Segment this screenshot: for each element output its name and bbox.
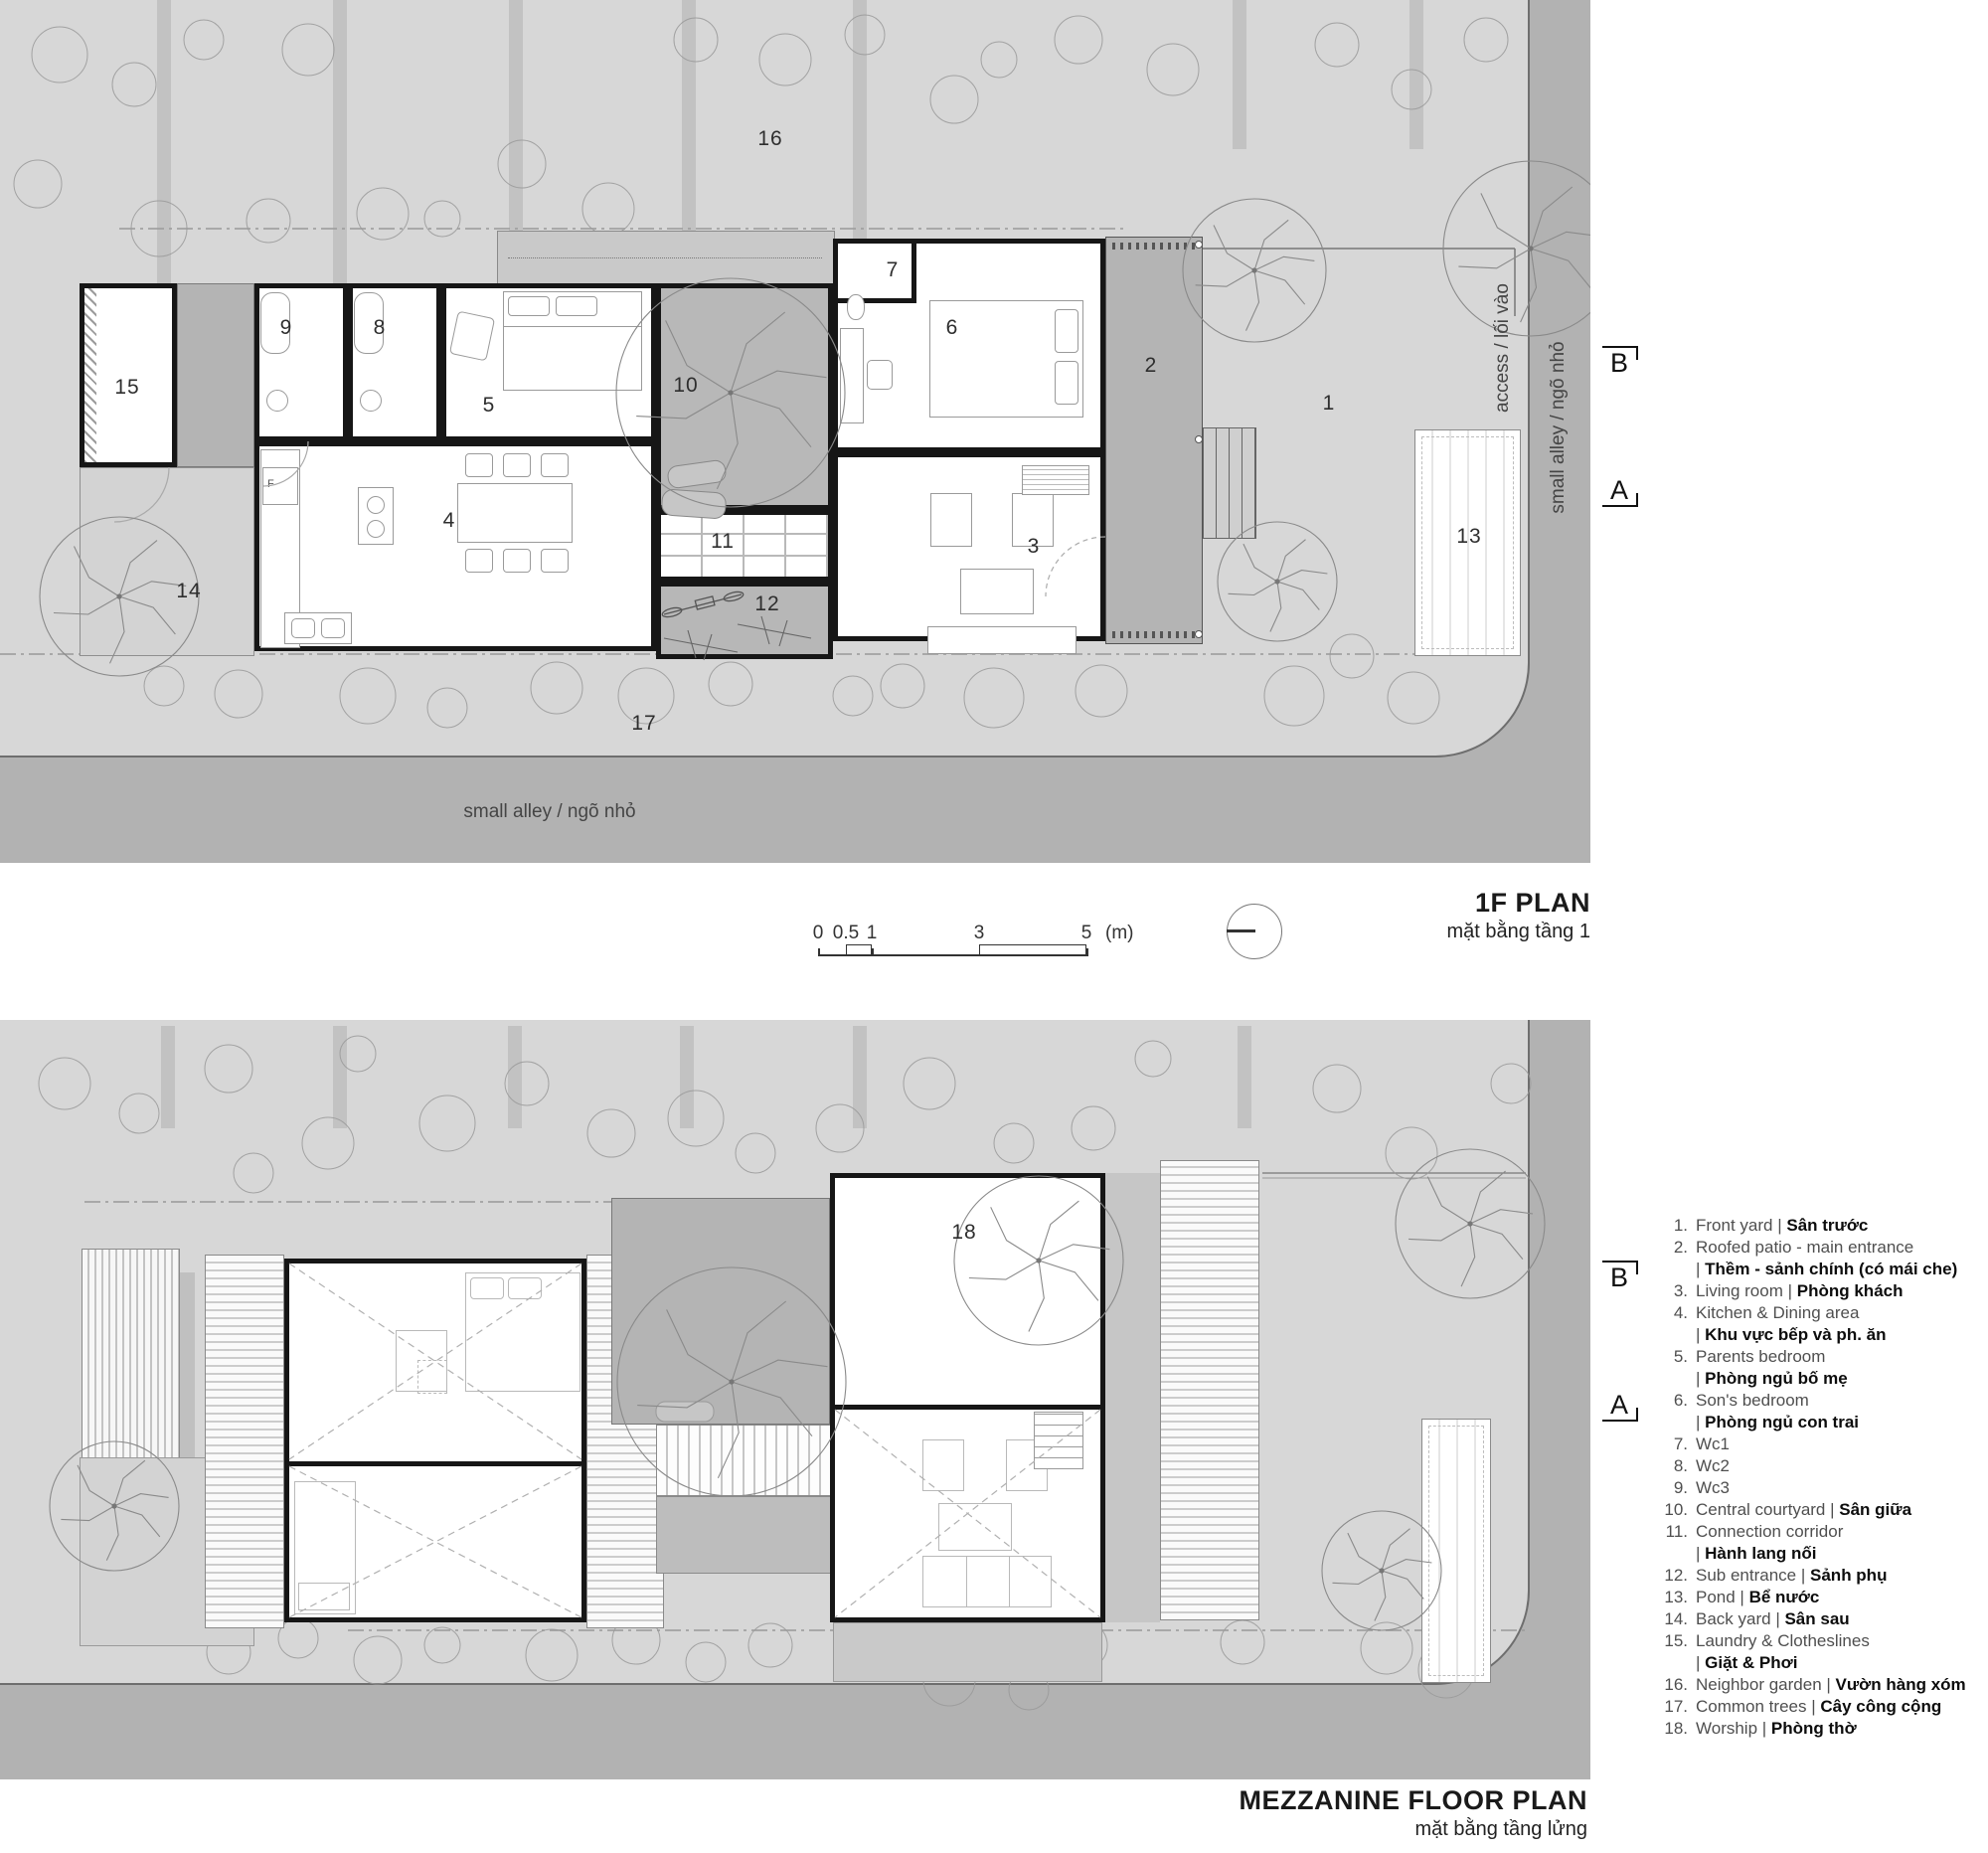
scale-tick-label: 3 <box>974 923 985 944</box>
legend-item: 14.Back yard | Sân sau <box>1650 1608 1978 1630</box>
door-swing-arc <box>114 467 169 522</box>
legend-item: 12.Sub entrance | Sảnh phụ <box>1650 1565 1978 1587</box>
room-label-18: 18 <box>951 1221 976 1245</box>
legend-item: 10.Central courtyard | Sân giữa <box>1650 1499 1978 1521</box>
legend-item-text: | Hành lang nối <box>1688 1543 1817 1565</box>
alley-label-horizontal: small alley / ngõ nhỏ <box>463 801 635 823</box>
plan2-subtitle: mặt bằng tầng lửng <box>1240 1818 1587 1841</box>
legend-item-text: Back yard | Sân sau <box>1688 1608 1850 1630</box>
legend-item-text: Son's bedroom <box>1688 1390 1809 1412</box>
legend-item-number: 3. <box>1650 1280 1688 1302</box>
legend-item-text: Kitchen & Dining area <box>1688 1302 1859 1324</box>
courtyard-stone <box>661 489 727 519</box>
legend-item: 9.Wc3 <box>1650 1477 1978 1499</box>
legend-item-number: 15. <box>1650 1630 1688 1652</box>
legend-item-vietnamese: Thềm - sảnh chính (có mái che) <box>1705 1260 1957 1278</box>
access-label: access / lối vào <box>1492 283 1514 413</box>
plan1-overlay-layer <box>0 0 1590 863</box>
large-tree-icon <box>1443 161 1590 336</box>
alley-label-vertical: small alley / ngõ nhỏ <box>1548 341 1570 513</box>
legend-item-number: 14. <box>1650 1608 1688 1630</box>
room-label-10: 10 <box>673 374 698 398</box>
legend-item-vietnamese: Khu vực bếp và ph. ăn <box>1705 1325 1886 1344</box>
bicycle-icon <box>738 616 811 646</box>
legend-item-wrap-line: | Khu vực bếp và ph. ăn <box>1650 1324 1978 1346</box>
legend-item-number: 13. <box>1650 1587 1688 1608</box>
section-marker-b-plan2: B <box>1602 1261 1636 1292</box>
legend-item-vietnamese: Sân trước <box>1786 1216 1868 1235</box>
legend-item: 11.Connection corridor <box>1650 1521 1978 1543</box>
room-label-5: 5 <box>483 394 496 418</box>
legend-item-text: | Phòng ngủ bố mẹ <box>1688 1368 1848 1390</box>
legend-item-text: | Khu vực bếp và ph. ăn <box>1688 1324 1886 1346</box>
legend-item-text: Wc2 <box>1688 1455 1730 1477</box>
legend-item: 15.Laundry & Clotheslines <box>1650 1630 1978 1652</box>
large-tree-icon <box>616 278 845 507</box>
legend-item-number: 10. <box>1650 1499 1688 1521</box>
legend-item: 4.Kitchen & Dining area <box>1650 1302 1978 1324</box>
legend-item: 1.Front yard | Sân trước <box>1650 1215 1978 1237</box>
room-label-6: 6 <box>946 316 959 340</box>
legend-item: 2.Roofed patio - main entrance <box>1650 1237 1978 1259</box>
plan2-title-block: MEZZANINE FLOOR PLAN mặt bằng tầng lửng <box>1240 1785 1587 1841</box>
legend-item-text: Parents bedroom <box>1688 1346 1825 1368</box>
legend-item-text: Central courtyard | Sân giữa <box>1688 1499 1911 1521</box>
scale-tick-label: 1 <box>867 923 878 944</box>
scale-tick <box>1086 948 1088 956</box>
legend-item: 13.Pond | Bể nước <box>1650 1587 1978 1608</box>
legend-item-number: 8. <box>1650 1455 1688 1477</box>
legend-item: 7.Wc1 <box>1650 1433 1978 1455</box>
legend-item-number: 6. <box>1650 1390 1688 1412</box>
large-tree-icon <box>1322 1511 1441 1630</box>
north-ray <box>1227 929 1255 932</box>
large-tree-icon <box>40 517 199 676</box>
scale-unit-label: (m) <box>1105 923 1133 944</box>
door-swing-arc <box>263 441 308 486</box>
legend-item-text: Neighbor garden | Vườn hàng xóm <box>1688 1674 1966 1696</box>
legend-item-number: 7. <box>1650 1433 1688 1455</box>
section-marker-a-plan2: A <box>1602 1390 1636 1422</box>
legend-item-wrap-line: | Thềm - sảnh chính (có mái che) <box>1650 1259 1978 1280</box>
large-tree-icon <box>1396 1149 1545 1298</box>
courtyard-stone <box>667 459 727 489</box>
room-label-13: 13 <box>1456 525 1481 549</box>
legend-item-text: Connection corridor <box>1688 1521 1843 1543</box>
courtyard-stone <box>656 1402 714 1422</box>
bicycle-icon <box>664 630 738 660</box>
legend-item-number: 2. <box>1650 1237 1688 1259</box>
legend-item-text: Wc3 <box>1688 1477 1730 1499</box>
room-label-9: 9 <box>280 316 293 340</box>
legend-item-wrap-line: | Phòng ngủ con trai <box>1650 1412 1978 1433</box>
legend-item-number: 17. <box>1650 1696 1688 1718</box>
legend-item: 6.Son's bedroom <box>1650 1390 1978 1412</box>
legend-item-vietnamese: Cây công cộng <box>1820 1697 1941 1716</box>
legend-item-text: | Thềm - sảnh chính (có mái che) <box>1688 1259 1957 1280</box>
legend-item-vietnamese: Hành lang nối <box>1705 1544 1816 1563</box>
legend-item: 17.Common trees | Cây công cộng <box>1650 1696 1978 1718</box>
legend-item-text: Laundry & Clotheslines <box>1688 1630 1870 1652</box>
legend-item-text: Living room | Phòng khách <box>1688 1280 1903 1302</box>
room-label-4: 4 <box>443 509 456 533</box>
large-tree-icon <box>617 1267 846 1496</box>
floorplan-sheet: F <box>0 0 1988 1853</box>
legend-item-wrap-line: | Phòng ngủ bố mẹ <box>1650 1368 1978 1390</box>
plan1-title-block: 1F PLAN mặt bằng tầng 1 <box>1446 888 1590 943</box>
motorbike-icon <box>661 590 744 619</box>
legend-item-vietnamese: Phòng ngủ con trai <box>1705 1413 1859 1432</box>
scale-bar-segment <box>979 944 1086 955</box>
legend-item-number: 16. <box>1650 1674 1688 1696</box>
room-label-3: 3 <box>1028 535 1041 559</box>
scale-bar-segment <box>846 944 872 955</box>
legend-item-text: | Giặt & Phơi <box>1688 1652 1797 1674</box>
legend-item-vietnamese: Bể nước <box>1749 1588 1820 1606</box>
room-label-15: 15 <box>114 376 139 400</box>
legend-item-text: | Phòng ngủ con trai <box>1688 1412 1859 1433</box>
plan1-title: 1F PLAN <box>1446 888 1590 919</box>
legend: 1.Front yard | Sân trước2.Roofed patio -… <box>1650 1215 1978 1740</box>
legend-item-vietnamese: Giặt & Phơi <box>1705 1653 1797 1672</box>
legend-item-text: Wc1 <box>1688 1433 1730 1455</box>
legend-item-number: 18. <box>1650 1718 1688 1740</box>
large-tree-icon <box>954 1176 1123 1345</box>
void-cross-lines <box>289 1263 1100 1617</box>
legend-item: 8.Wc2 <box>1650 1455 1978 1477</box>
plan1-subtitle: mặt bằng tầng 1 <box>1446 921 1590 943</box>
legend-item-vietnamese: Sân giữa <box>1839 1500 1911 1519</box>
large-tree-icon <box>50 1441 179 1571</box>
room-label-12: 12 <box>754 592 779 616</box>
scale-tick-label: 0.5 <box>833 923 859 944</box>
legend-item-text: Pond | Bể nước <box>1688 1587 1819 1608</box>
legend-item: 18.Worship | Phòng thờ <box>1650 1718 1978 1740</box>
legend-item: 5.Parents bedroom <box>1650 1346 1978 1368</box>
scale-tick-label: 5 <box>1081 923 1092 944</box>
room-label-2: 2 <box>1145 354 1158 378</box>
room-label-17: 17 <box>631 712 656 736</box>
legend-item-text: Worship | Phòng thờ <box>1688 1718 1857 1740</box>
legend-item-number: 9. <box>1650 1477 1688 1499</box>
legend-item-text: Front yard | Sân trước <box>1688 1215 1868 1237</box>
legend-item-vietnamese: Phòng thờ <box>1771 1719 1857 1738</box>
legend-item-text: Common trees | Cây công cộng <box>1688 1696 1941 1718</box>
scale-tick-label: 0 <box>813 923 824 944</box>
legend-item-vietnamese: Phòng ngủ bố mẹ <box>1705 1369 1848 1388</box>
room-label-11: 11 <box>711 530 735 554</box>
large-tree-icon <box>1218 522 1337 641</box>
legend-item-vietnamese: Vườn hàng xóm <box>1836 1675 1966 1694</box>
room-label-16: 16 <box>757 127 782 151</box>
room-label-14: 14 <box>176 580 201 603</box>
large-tree-icon <box>1183 199 1326 342</box>
legend-item-text: Roofed patio - main entrance <box>1688 1237 1913 1259</box>
legend-item-vietnamese: Sảnh phụ <box>1810 1566 1887 1585</box>
plan2-overlay-layer <box>0 1020 1590 1779</box>
legend-item-number: 5. <box>1650 1346 1688 1368</box>
legend-item-number: 12. <box>1650 1565 1688 1587</box>
legend-item: 3.Living room | Phòng khách <box>1650 1280 1978 1302</box>
legend-item-wrap-line: | Giặt & Phơi <box>1650 1652 1978 1674</box>
room-label-7: 7 <box>887 258 900 282</box>
legend-item-vietnamese: Phòng khách <box>1797 1281 1904 1300</box>
room-label-8: 8 <box>374 316 387 340</box>
legend-item-text: Sub entrance | Sảnh phụ <box>1688 1565 1887 1587</box>
legend-item-vietnamese: Sân sau <box>1784 1609 1849 1628</box>
door-swing-arc <box>1046 537 1105 596</box>
legend-item-number: 11. <box>1650 1521 1688 1543</box>
legend-item-number: 4. <box>1650 1302 1688 1324</box>
legend-item-number: 1. <box>1650 1215 1688 1237</box>
section-marker-a-plan1: A <box>1602 475 1636 507</box>
legend-item-wrap-line: | Hành lang nối <box>1650 1543 1978 1565</box>
plan2-title: MEZZANINE FLOOR PLAN <box>1240 1785 1587 1816</box>
north-indicator-icon <box>1227 904 1282 959</box>
room-label-1: 1 <box>1323 392 1336 416</box>
section-marker-b-plan1: B <box>1602 346 1636 378</box>
legend-item: 16.Neighbor garden | Vườn hàng xóm <box>1650 1674 1978 1696</box>
